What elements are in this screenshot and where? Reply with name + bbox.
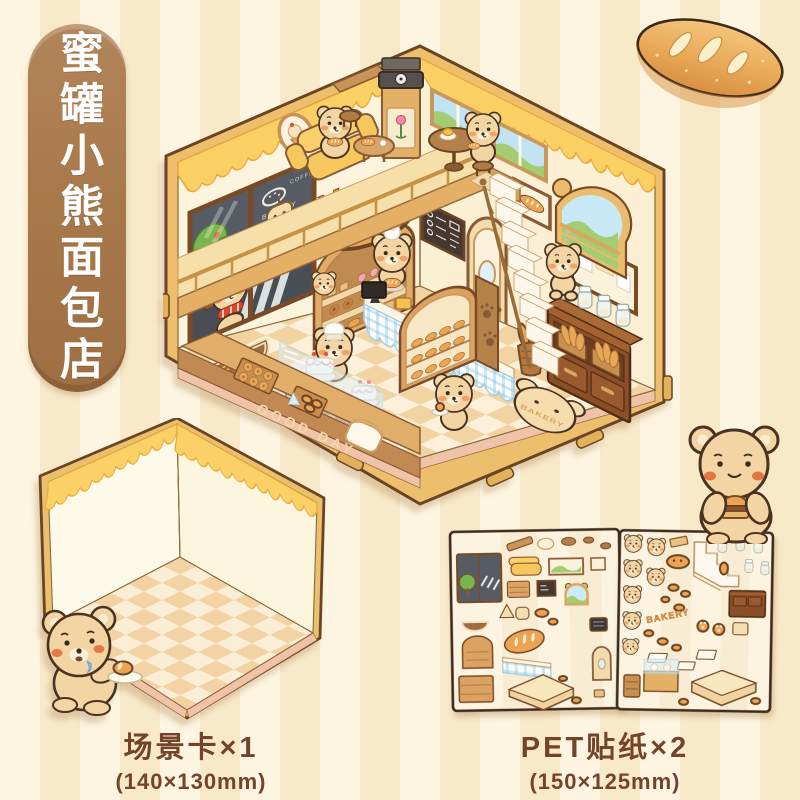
sticker-sheet-2: BAKERY — [615, 529, 774, 714]
stairs-bear — [545, 244, 581, 301]
cash-box — [396, 298, 411, 309]
register-monitor — [362, 282, 386, 298]
peek-bear — [312, 272, 336, 295]
bear-with-bun-icon — [676, 420, 798, 544]
mini-bear-window — [565, 583, 587, 604]
scene-card-dims: (140×130mm) — [35, 769, 347, 795]
product-page: { "badge": { "text": "蜜罐小熊面包店", "bg_colo… — [0, 0, 800, 800]
scene-card-label: 场景卡×1 — [35, 724, 347, 766]
stickers-caption: PET贴纸×2 (150×125mm) — [445, 724, 765, 795]
mini-sofa — [509, 557, 541, 576]
sticker-sheet-1 — [448, 528, 623, 713]
mini-cake-case — [644, 659, 679, 692]
stickers-label: PET贴纸×2 — [445, 724, 765, 766]
stickers-dims: (150×125mm) — [445, 769, 765, 795]
scene-card-caption: 场景卡×1 (140×130mm) — [35, 724, 347, 795]
product-title-text: 蜜罐小熊面包店 — [55, 30, 99, 387]
scene-card-illustration — [22, 418, 328, 724]
product-title-badge: 蜜罐小熊面包店 — [28, 24, 126, 392]
mini-storefront — [457, 554, 502, 603]
mini-dark-cabinet — [729, 591, 765, 618]
